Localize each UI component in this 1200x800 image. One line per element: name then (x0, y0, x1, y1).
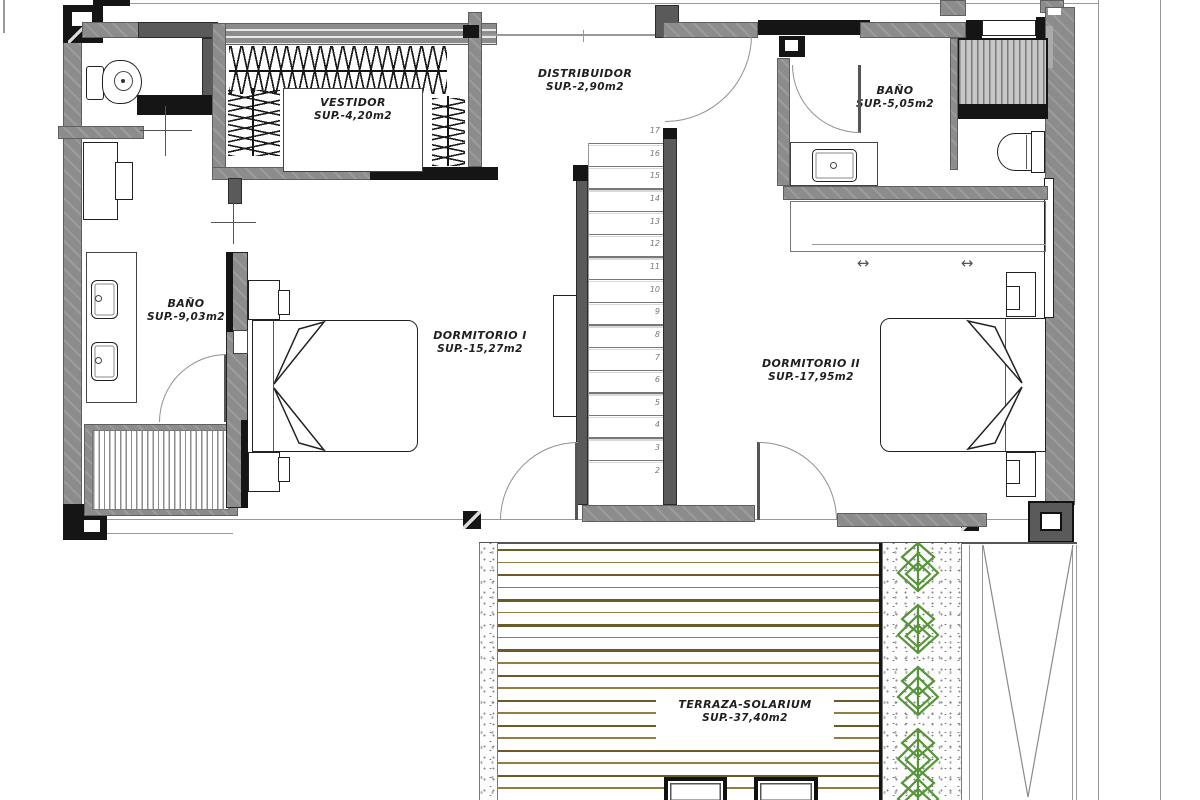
bay-v-mark (0, 0, 1200, 800)
plant-icon (892, 766, 944, 800)
plant-icon (892, 540, 944, 594)
floor-plan: VESTIDOR SUP.-4,20m2 DISTRIBUIDOR SUP.-2… (0, 0, 1200, 800)
plant-icon (892, 602, 944, 656)
plant-icon (892, 664, 944, 718)
